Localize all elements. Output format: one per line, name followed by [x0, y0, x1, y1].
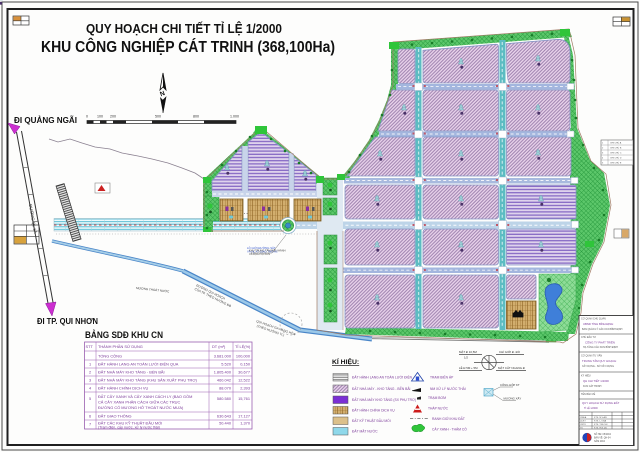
svg-text:CÂY XANH - THẢM CỎ: CÂY XANH - THẢM CỎ: [432, 427, 467, 432]
svg-text:TỔNG CỘNG: TỔNG CỘNG: [98, 354, 122, 359]
svg-text:30,677: 30,677: [238, 370, 250, 375]
svg-text:88.070: 88.070: [219, 386, 232, 391]
svg-text:CỐNG HỘP KT: CỐNG HỘP KT: [500, 382, 520, 387]
svg-text:TỈ LỆ 1/2000: TỈ LỆ 1/2000: [584, 407, 598, 410]
svg-text:NM XỬ LÝ NƯỚC THẢI: NM XỬ LÝ NƯỚC THẢI: [430, 386, 466, 391]
svg-text:SỐ HĐ: 05/2004: SỐ HĐ: 05/2004: [594, 433, 612, 436]
svg-text:GHI CHÚ B: GHI CHÚ B: [610, 147, 622, 150]
svg-text:ĐẤT NHÀ MÁY KHO TÀNG - BẾN BÃI: ĐẤT NHÀ MÁY KHO TÀNG - BẾN BÃI: [98, 370, 165, 375]
svg-text:CƠ QUAN CHỦ QUẢN: CƠ QUAN CHỦ QUẢN: [581, 318, 606, 321]
svg-text:GHI CHÚ A: GHI CHÚ A: [610, 142, 622, 145]
svg-text:KÍ HIỆU:: KÍ HIỆU:: [332, 357, 359, 366]
svg-text:ĐI QUẢNG NGÃI: ĐI QUẢNG NGÃI: [14, 116, 77, 125]
svg-text:MẶT CẮT NGANG Đ: MẶT CẮT NGANG Đ: [498, 365, 525, 370]
svg-text:QH CHI TIẾT 1/2000: QH CHI TIẾT 1/2000: [583, 378, 609, 383]
svg-text:HẠ TẦNG CÁC KCN BÌNH ĐỊNH: HẠ TẦNG CÁC KCN BÌNH ĐỊNH: [583, 346, 618, 349]
svg-text:CHỦ ĐẦU TƯ: CHỦ ĐẦU TƯ: [581, 336, 596, 339]
svg-text:CÔNG TY PHÁT TRIỂN: CÔNG TY PHÁT TRIỂN: [585, 340, 615, 345]
svg-text:KCN CÁT TRINH: KCN CÁT TRINH: [583, 385, 602, 388]
svg-text:TRUNG TÂM QUY HOẠCH: TRUNG TÂM QUY HOẠCH: [582, 358, 616, 363]
svg-text:ĐƯỜNG CÓ MƯƠNG HỞ THOÁT NƯỚC M: ĐƯỜNG CÓ MƯƠNG HỞ THOÁT NƯỚC MƯA): [98, 405, 184, 410]
svg-text:5: 5: [89, 396, 91, 401]
svg-text:KTS. T.M.CHI: KTS. T.M.CHI: [594, 424, 608, 426]
svg-text:RANH GIỚI KHU ĐẤT: RANH GIỚI KHU ĐẤT: [432, 416, 465, 421]
svg-text:3.681.000: 3.681.000: [214, 354, 232, 359]
svg-text:BẢN VẼ: QH-04: BẢN VẼ: QH-04: [594, 437, 611, 440]
svg-text:CNTK: CNTK: [580, 424, 586, 426]
svg-text:ĐẤT GIAO THÔNG: ĐẤT GIAO THÔNG: [98, 414, 132, 419]
svg-text:TỈ LỆ(%): TỈ LỆ(%): [235, 344, 251, 349]
svg-text:QLKT: QLKT: [580, 421, 586, 423]
svg-text:STT: STT: [86, 344, 94, 349]
svg-text:7: 7: [89, 422, 91, 427]
svg-text:QUY HOẠCH CHI TIẾT TỈ LỆ 1/200: QUY HOẠCH CHI TIẾT TỈ LỆ 1/2000: [86, 21, 282, 36]
svg-text:ĐẤT KỸ THUẬT ĐẦU MỐI: ĐẤT KỸ THUẬT ĐẦU MỐI: [352, 418, 391, 423]
svg-text:800: 800: [193, 115, 199, 119]
svg-text:100: 100: [97, 115, 103, 119]
svg-text:1,370: 1,370: [240, 421, 251, 426]
svg-text:ĐẤT MẶT NƯỚC: ĐẤT MẶT NƯỚC: [352, 429, 378, 434]
svg-text:GHI CHÚ D: GHI CHÚ D: [610, 157, 622, 160]
svg-text:(Trạm điện, cấp nước, xử lý nư: (Trạm điện, cấp nước, xử lý nước thải): [98, 425, 160, 429]
svg-text:1.805.400: 1.805.400: [214, 370, 232, 375]
svg-text:CHỈ GIỚI Đ. ĐỎ: CHỈ GIỚI Đ. ĐỎ: [499, 349, 521, 354]
svg-text:2,393: 2,393: [240, 386, 250, 391]
svg-text:50.440: 50.440: [219, 421, 232, 426]
svg-text:MẶT Đ 10,5M: MẶT Đ 10,5M: [459, 350, 477, 354]
svg-text:TÊN BẢN VẼ: TÊN BẢN VẼ: [581, 393, 596, 396]
svg-text:17,127: 17,127: [238, 414, 250, 419]
svg-text:KÝ HIỆU: KÝ HIỆU: [581, 375, 591, 378]
svg-text:DT (m²): DT (m²): [212, 344, 226, 349]
svg-text:VÀ DỊCH VỤ KCN: VÀ DỊCH VỤ KCN: [249, 252, 270, 256]
svg-text:1: 1: [89, 362, 91, 367]
svg-text:ĐẤT CÂY XANH VÀ CÂY XANH CÁCH: ĐẤT CÂY XANH VÀ CÂY XANH CÁCH LY (BAO GỒ…: [98, 394, 192, 399]
svg-text:15,761: 15,761: [238, 396, 250, 401]
svg-text:TRẠM BIẾN ÁP: TRẠM BIẾN ÁP: [430, 375, 454, 380]
svg-text:ĐẤT HÀNH CHÍNH DỊCH VỤ: ĐẤT HÀNH CHÍNH DỊCH VỤ: [352, 409, 395, 413]
svg-text:200: 200: [110, 115, 116, 119]
svg-text:THÀNH PHẦN SỬ DỤNG: THÀNH PHẦN SỬ DỤNG: [98, 344, 143, 349]
svg-text:BAN QUẢN LÝ CÁC KCN BÌNH ĐỊNH: BAN QUẢN LÝ CÁC KCN BÌNH ĐỊNH: [582, 328, 623, 331]
svg-text:1/2: 1/2: [464, 356, 468, 360]
svg-text:CƠ QUAN TƯ VẤN: CƠ QUAN TƯ VẤN: [581, 355, 602, 358]
svg-text:CNĐA: CNĐA: [580, 416, 587, 419]
svg-text:5.520: 5.520: [221, 362, 232, 367]
svg-text:KTS. N.V.AN: KTS. N.V.AN: [594, 416, 607, 419]
svg-text:KTS. H.N.DU: KTS. H.N.DU: [594, 428, 607, 430]
svg-text:MƯƠNG XÂY: MƯƠNG XÂY: [504, 396, 522, 401]
svg-text:0,150: 0,150: [240, 362, 251, 367]
svg-text:ĐI TP. QUI NHƠN: ĐI TP. QUI NHƠN: [37, 317, 98, 326]
svg-text:CẢ CÂY XANH PHÂN CÁCH GIỮA CÁC: CẢ CÂY XANH PHÂN CÁCH GIỮA CÁC TRỤC: [98, 400, 180, 405]
svg-text:ĐẤT HÀNH CHÍNH DỊCH VỤ: ĐẤT HÀNH CHÍNH DỊCH VỤ: [98, 386, 148, 391]
svg-text:500: 500: [155, 115, 161, 119]
svg-text:ĐẤT NHÀ MÁY - KHO TÀNG - BẾN B: ĐẤT NHÀ MÁY - KHO TÀNG - BẾN BÃI: [352, 386, 411, 391]
svg-text:QUY HOẠCH SỬ DỤNG ĐẤT: QUY HOẠCH SỬ DỤNG ĐẤT: [582, 400, 620, 405]
svg-text:ĐẤT NHÀ MÁY KHO TÀNG (SX PHỤ T: ĐẤT NHÀ MÁY KHO TÀNG (SX PHỤ TRỢ): [352, 398, 416, 402]
svg-text:580.580: 580.580: [217, 396, 232, 401]
svg-text:0: 0: [86, 115, 88, 119]
svg-text:3: 3: [89, 378, 91, 383]
svg-text:2: 2: [89, 370, 91, 375]
svg-text:NĂM 2004: NĂM 2004: [594, 440, 606, 443]
svg-text:ĐẤT NHÀ MÁY KHO TÀNG (KHU SẢN: ĐẤT NHÀ MÁY KHO TÀNG (KHU SẢN XUẤT PHỤ T…: [98, 378, 198, 383]
svg-text:XÂY DỰNG - SỞ XÂY DỰNG: XÂY DỰNG - SỞ XÂY DỰNG: [582, 365, 614, 368]
svg-text:12,522: 12,522: [238, 378, 250, 383]
svg-text:BẢNG SDĐ KHU CN: BẢNG SDĐ KHU CN: [85, 329, 163, 341]
svg-text:KTS. L.V.BA: KTS. L.V.BA: [594, 420, 607, 423]
svg-text:THÁP NƯỚC: THÁP NƯỚC: [428, 406, 449, 411]
svg-text:UBND TỈNH BÌNH ĐỊNH: UBND TỈNH BÌNH ĐỊNH: [583, 321, 613, 326]
svg-text:100,000: 100,000: [236, 354, 251, 359]
svg-text:TRẠM BƠM: TRẠM BƠM: [428, 396, 446, 400]
svg-text:GHI CHÚ C: GHI CHÚ C: [610, 152, 622, 155]
svg-text:1.000: 1.000: [230, 115, 239, 119]
svg-text:GHI CHÚ E: GHI CHÚ E: [610, 162, 622, 165]
svg-text:LỀ Đ 5M + 5M: LỀ Đ 5M + 5M: [459, 365, 478, 370]
svg-text:630.643: 630.643: [217, 414, 231, 419]
svg-text:ĐẤT HÀNH LANG AN TOÀN LƯỚI ĐIỆ: ĐẤT HÀNH LANG AN TOÀN LƯỚI ĐIỆN: [352, 375, 413, 380]
svg-text:ĐẤT HÀNH LANG AN TOÀN LƯỚI ĐIỆ: ĐẤT HÀNH LANG AN TOÀN LƯỚI ĐIỆN QUA: [98, 362, 179, 367]
svg-text:KHU CÔNG NGHIỆP CÁT TRINH (368: KHU CÔNG NGHIỆP CÁT TRINH (368,100Ha): [41, 37, 335, 56]
svg-text:6: 6: [89, 414, 91, 419]
svg-text:460.042: 460.042: [217, 378, 231, 383]
